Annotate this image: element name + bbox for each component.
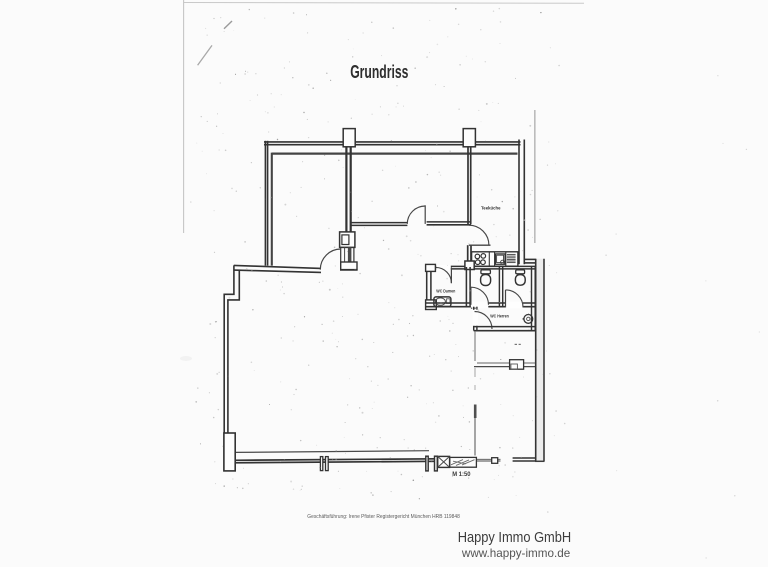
svg-text:WC Herren: WC Herren — [490, 314, 509, 320]
svg-text:Happy Immo GmbH: Happy Immo GmbH — [458, 530, 572, 546]
svg-text:M 1:50: M 1:50 — [452, 471, 471, 478]
svg-text:WC Damen: WC Damen — [436, 288, 455, 294]
svg-text:www.happy-immo.de: www.happy-immo.de — [461, 546, 571, 560]
svg-text:Grundriss: Grundriss — [350, 61, 408, 82]
svg-text:Geschäftsführung: Irene Pfiste: Geschäftsführung: Irene Pfister Register… — [307, 514, 460, 520]
svg-text:Teeküche: Teeküche — [481, 205, 501, 211]
